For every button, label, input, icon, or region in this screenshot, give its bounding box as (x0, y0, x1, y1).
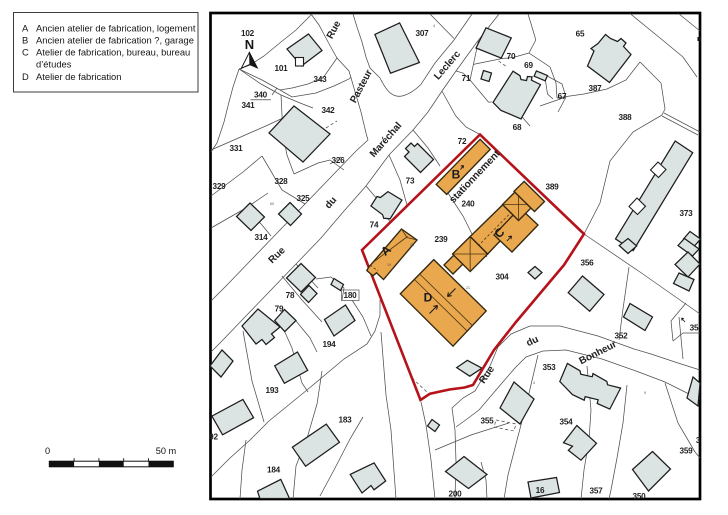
svg-text:180: 180 (343, 291, 357, 300)
svg-text:C: C (22, 47, 29, 58)
svg-text:355: 355 (480, 417, 494, 426)
svg-text:73: 73 (406, 177, 415, 186)
svg-text:354: 354 (559, 418, 573, 427)
svg-text:N: N (245, 37, 254, 52)
svg-text:240: 240 (461, 200, 475, 209)
svg-text:314: 314 (254, 233, 268, 242)
svg-text:68: 68 (513, 123, 522, 132)
svg-text:19: 19 (387, 263, 391, 267)
svg-text:359: 359 (679, 447, 693, 456)
svg-text:183: 183 (338, 416, 352, 425)
svg-text:A: A (22, 23, 29, 34)
svg-text:340: 340 (254, 91, 268, 100)
svg-text:353: 353 (542, 363, 556, 372)
svg-text:71: 71 (462, 74, 471, 83)
svg-text:0: 0 (45, 446, 50, 456)
svg-text:387: 387 (588, 84, 602, 93)
svg-text:Atelier de fabrication, bureau: Atelier de fabrication, bureau, bureau (36, 47, 190, 58)
svg-text:16: 16 (536, 486, 545, 495)
svg-text:B: B (22, 35, 28, 46)
svg-text:50 m: 50 m (156, 446, 177, 456)
svg-text:307: 307 (415, 29, 429, 38)
svg-text:101: 101 (274, 64, 288, 73)
svg-text:67: 67 (558, 92, 567, 101)
svg-text:69: 69 (524, 61, 533, 70)
svg-text:388: 388 (618, 113, 632, 122)
svg-text:60: 60 (270, 202, 274, 206)
svg-text:Atelier de fabrication: Atelier de fabrication (36, 71, 121, 82)
svg-text:341: 341 (241, 101, 255, 110)
svg-text:Ancien atelier de fabrication: Ancien atelier de fabrication ?, garage (36, 35, 194, 46)
svg-text:70: 70 (507, 52, 516, 61)
svg-text:342: 342 (321, 106, 335, 115)
svg-text:D: D (22, 71, 29, 82)
svg-text:373: 373 (679, 209, 693, 218)
svg-text:35: 35 (690, 324, 699, 333)
svg-text:352: 352 (614, 332, 628, 341)
svg-text:d’études: d’études (36, 59, 72, 70)
svg-text:72: 72 (458, 137, 467, 146)
svg-text:92: 92 (209, 433, 218, 442)
svg-text:200: 200 (448, 490, 462, 499)
svg-text:4: 4 (433, 24, 435, 28)
svg-text:3: 3 (696, 436, 701, 445)
svg-text:326: 326 (331, 156, 345, 165)
svg-text:B: B (452, 168, 461, 182)
svg-text:D: D (424, 291, 433, 305)
svg-text:79: 79 (275, 305, 284, 314)
svg-text:356: 356 (580, 259, 594, 268)
svg-text:325: 325 (296, 194, 310, 203)
svg-text:193: 193 (265, 386, 279, 395)
svg-text:343: 343 (313, 75, 327, 84)
svg-text:4: 4 (533, 381, 535, 385)
svg-text:389: 389 (545, 183, 559, 192)
svg-text:9: 9 (644, 391, 646, 395)
svg-text:21: 21 (466, 286, 470, 290)
svg-text:65: 65 (576, 30, 585, 39)
svg-text:Ancien atelier de fabrication,: Ancien atelier de fabrication, logement (36, 23, 196, 34)
svg-text:328: 328 (274, 177, 288, 186)
svg-text:74: 74 (370, 221, 379, 230)
svg-text:350: 350 (632, 492, 646, 501)
svg-text:357: 357 (589, 487, 603, 496)
svg-text:239: 239 (434, 235, 448, 244)
svg-text:194: 194 (322, 340, 336, 349)
svg-text:25: 25 (410, 243, 414, 247)
svg-text:331: 331 (229, 144, 243, 153)
svg-text:9: 9 (352, 315, 354, 319)
svg-text:304: 304 (495, 273, 509, 282)
svg-text:184: 184 (267, 466, 281, 475)
svg-text:329: 329 (212, 182, 226, 191)
svg-text:78: 78 (286, 291, 295, 300)
